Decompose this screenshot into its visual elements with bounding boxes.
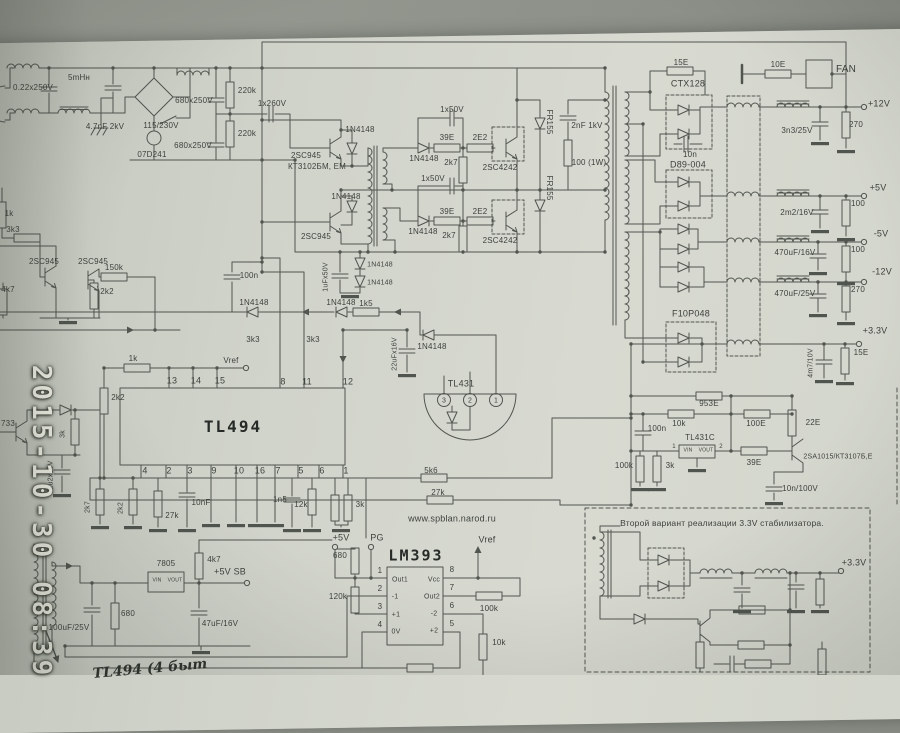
schematic-label: 1N4148 (417, 343, 446, 351)
schematic-label: 680x250V (175, 97, 213, 105)
schematic-label: 1n5 (273, 496, 287, 504)
schematic-label: +12V (868, 100, 890, 109)
schematic-label: 1N4148 (367, 280, 393, 287)
schematic-label: 2 (468, 398, 472, 405)
schematic-label: 100 (851, 246, 865, 254)
schematic-label: 1N4148 (345, 126, 374, 134)
schematic-label: 1x50V (421, 175, 445, 183)
schematic-label: 10n/100V (782, 485, 818, 493)
schematic-label: 14 (191, 377, 201, 386)
schematic-label: 2SC945 (291, 152, 321, 160)
schematic-label: -2 (431, 611, 438, 618)
schematic-label: 2m2/16V (780, 209, 813, 217)
schematic-label: 680 (333, 552, 347, 560)
schematic-label: 2SC4242 (483, 237, 518, 245)
schematic-label: 1N4148 (409, 155, 438, 163)
schematic-label: 2k7 (442, 232, 456, 240)
schematic-label: 1 (343, 467, 348, 476)
schematic-label: 100E (746, 420, 765, 428)
schematic-label: 07D241 (137, 151, 166, 159)
schematic-label: 150k (105, 264, 123, 272)
schematic-label: 22E (806, 419, 821, 427)
schematic-label: 3k3 (246, 336, 260, 344)
schematic-label: +3.3V (842, 559, 867, 568)
schematic-label: 2k7 (444, 159, 458, 167)
schematic-label: 3 (187, 467, 192, 476)
schematic-label: 1N4148 (367, 262, 393, 269)
schematic-label: 10k (672, 420, 686, 428)
schematic-label: 5k6 (424, 467, 438, 475)
schematic-label: 2nF 1kV (571, 122, 602, 130)
schematic-label: 3 (442, 398, 446, 405)
schematic-label: 1 (378, 567, 383, 575)
schematic-label: 1N4148 (326, 299, 355, 307)
schematic-label: 2SC945 (78, 258, 108, 266)
schematic-label: 39E (747, 459, 762, 467)
schematic-label: 3k (60, 430, 67, 438)
schematic-label: 0.22x250V (13, 84, 53, 92)
schematic-label: 7 (275, 467, 280, 476)
schematic-label: FR155 (545, 109, 553, 134)
schematic-label: 115/230V (143, 122, 178, 130)
schematic-label: 2SC4242 (483, 164, 518, 172)
schematic-label: D89-004 (670, 161, 706, 170)
schematic-label: 27k (431, 489, 445, 497)
schematic-label: 100n (240, 272, 259, 280)
schematic-label: 10k (492, 639, 506, 647)
schematic-label: Vref (223, 357, 238, 365)
schematic-label: 270 (851, 286, 865, 294)
schematic-label: 220k (238, 130, 256, 138)
schematic-label: 3n3/25V (781, 127, 812, 135)
schematic-label: 13 (167, 377, 177, 386)
schematic-label: 1uFx50V (323, 262, 330, 291)
schematic-label: 2E2 (473, 134, 488, 142)
schematic-label: 5mHн (68, 74, 90, 82)
schematic-label: 5 (298, 467, 303, 476)
schematic-label: 100n (648, 425, 667, 433)
schematic-label: 100k (615, 462, 633, 470)
schematic-label: TL494 (204, 419, 262, 435)
schematic-label: TL431 (448, 380, 475, 389)
schematic-label: 10 (234, 467, 244, 476)
schematic-label: +1 (392, 612, 400, 619)
schematic-label: 12k (294, 501, 308, 509)
schematic-label: 470uF/16V (775, 249, 816, 257)
schematic-label: +2 (430, 628, 438, 635)
schematic-label: 8 (280, 378, 285, 387)
schematic-label: 100 (1W) (572, 159, 607, 167)
schematic-label: 953E (699, 400, 718, 408)
photo-of-psu-schematic: { "photo": { "timestamp": "2015-10-30 08… (0, 0, 900, 675)
schematic-label: 8 (450, 566, 455, 574)
schematic-label: 2SC945 (301, 233, 331, 241)
schematic-label: 12 (343, 378, 353, 387)
schematic-label: 10n (683, 151, 697, 159)
schematic-label: 15E (674, 59, 689, 67)
schematic-label: Vref (479, 536, 496, 545)
schematic-label: -12V (872, 268, 892, 277)
schematic-label: 2k2 (118, 502, 125, 514)
schematic-label: 100 (851, 200, 865, 208)
schematic-label: 1N4148 (408, 228, 437, 236)
schematic-label: 1k5 (359, 300, 373, 308)
schematic-label: Vcc (428, 577, 440, 584)
schematic-label: TL431C (685, 434, 715, 442)
schematic-label: 2SC945 (29, 258, 59, 266)
schematic-label: 27k (165, 512, 179, 520)
schematic-label: VOUT (168, 579, 183, 584)
schematic-label: 10nF (191, 499, 210, 507)
schematic-label: 2k2 (100, 288, 114, 296)
schematic-label: КТ3102БМ, ЕМ (288, 163, 346, 171)
schematic-label: 2SA1015/КТ3107Б,Е (803, 454, 872, 461)
schematic-label: 47uF/16V (202, 620, 238, 628)
schematic-label: 2k2 (111, 394, 125, 402)
schematic-label: 3k3 (6, 226, 20, 234)
schematic-labels-layer: 0.22x250V5mHн4.7nF 2kV115/230V07D241680x… (0, 0, 900, 675)
schematic-label: FR155 (545, 175, 553, 200)
schematic-label: 120k (329, 593, 347, 601)
schematic-label: 4 (378, 621, 383, 629)
schematic-label: Out2 (424, 594, 440, 601)
schematic-label: 2E2 (473, 208, 488, 216)
schematic-label: 3k (356, 501, 365, 509)
schematic-label: 4.7nF 2kV (86, 123, 124, 131)
schematic-label: 7 (450, 584, 455, 592)
schematic-label: -5V (874, 230, 889, 239)
schematic-label: 1N4148 (331, 193, 360, 201)
schematic-label: 2k7 (85, 501, 92, 513)
schematic-label: -1 (392, 594, 399, 601)
schematic-label: 270 (849, 121, 863, 129)
schematic-label: 3 (378, 603, 383, 611)
schematic-label: 2 (166, 467, 171, 476)
schematic-label: 15 (215, 377, 225, 386)
schematic-label: Второй вариант реализации 3.3V стабилиза… (620, 519, 824, 528)
schematic-label: 220k (238, 87, 256, 95)
schematic-label: 6 (450, 602, 455, 610)
schematic-label: VIN (153, 579, 162, 584)
schematic-label: +5V SB (214, 568, 246, 577)
schematic-label: 3k3 (306, 336, 320, 344)
schematic-label: 2 (719, 444, 723, 450)
schematic-label: 6 (319, 467, 324, 476)
schematic-label: 680x250V (174, 142, 212, 150)
schematic-label: 470uF/25V (775, 290, 816, 298)
schematic-label: Out1 (392, 577, 408, 584)
schematic-label: 1k (5, 210, 14, 218)
schematic-label: 1 (672, 444, 676, 450)
schematic-label: 1 (494, 398, 498, 405)
schematic-label: 0V (392, 629, 401, 636)
schematic-label: +5V (870, 184, 887, 193)
schematic-label: 22uFx16V (392, 337, 399, 371)
schematic-label: 4m7/10V (808, 348, 815, 377)
schematic-label: 100k (480, 605, 498, 613)
schematic-label: 4k7 (1, 286, 15, 294)
schematic-label: 11 (302, 378, 312, 387)
schematic-label: 1k (129, 355, 138, 363)
schematic-label: 9 (211, 467, 216, 476)
schematic-label: 1N4148 (239, 299, 268, 307)
schematic-label: 39E (440, 134, 455, 142)
schematic-label: 15E (854, 349, 869, 357)
schematic-label: 39E (440, 208, 455, 216)
schematic-label: www.spblan.narod.ru (408, 515, 496, 524)
schematic-label: 1x260V (258, 100, 286, 108)
schematic-label: LM393 (388, 549, 443, 564)
schematic-label: 733 (1, 420, 15, 428)
schematic-label: 7805 (157, 560, 176, 568)
schematic-label: FAN (836, 65, 856, 75)
schematic-label: +5V (333, 534, 350, 543)
schematic-label: VIN (684, 449, 693, 454)
schematic-label: 2 (378, 585, 383, 593)
schematic-label: 10E (771, 61, 786, 69)
schematic-label: F10P048 (672, 310, 710, 319)
schematic-label: 4 (142, 467, 147, 476)
schematic-label: +3.3V (863, 327, 888, 336)
schematic-label: CTX128 (671, 80, 705, 89)
schematic-label: 4k7 (207, 556, 221, 564)
schematic-label: 3k (666, 462, 675, 470)
camera-timestamp: 2015-10-30 08:39 (26, 365, 56, 679)
schematic-label: 1x50V (440, 106, 464, 114)
schematic-label: 5 (450, 620, 455, 628)
schematic-label: PG (370, 534, 383, 543)
schematic-label: 680 (121, 610, 135, 618)
schematic-label: VOUT (699, 449, 714, 454)
schematic-label: 16 (255, 467, 265, 476)
